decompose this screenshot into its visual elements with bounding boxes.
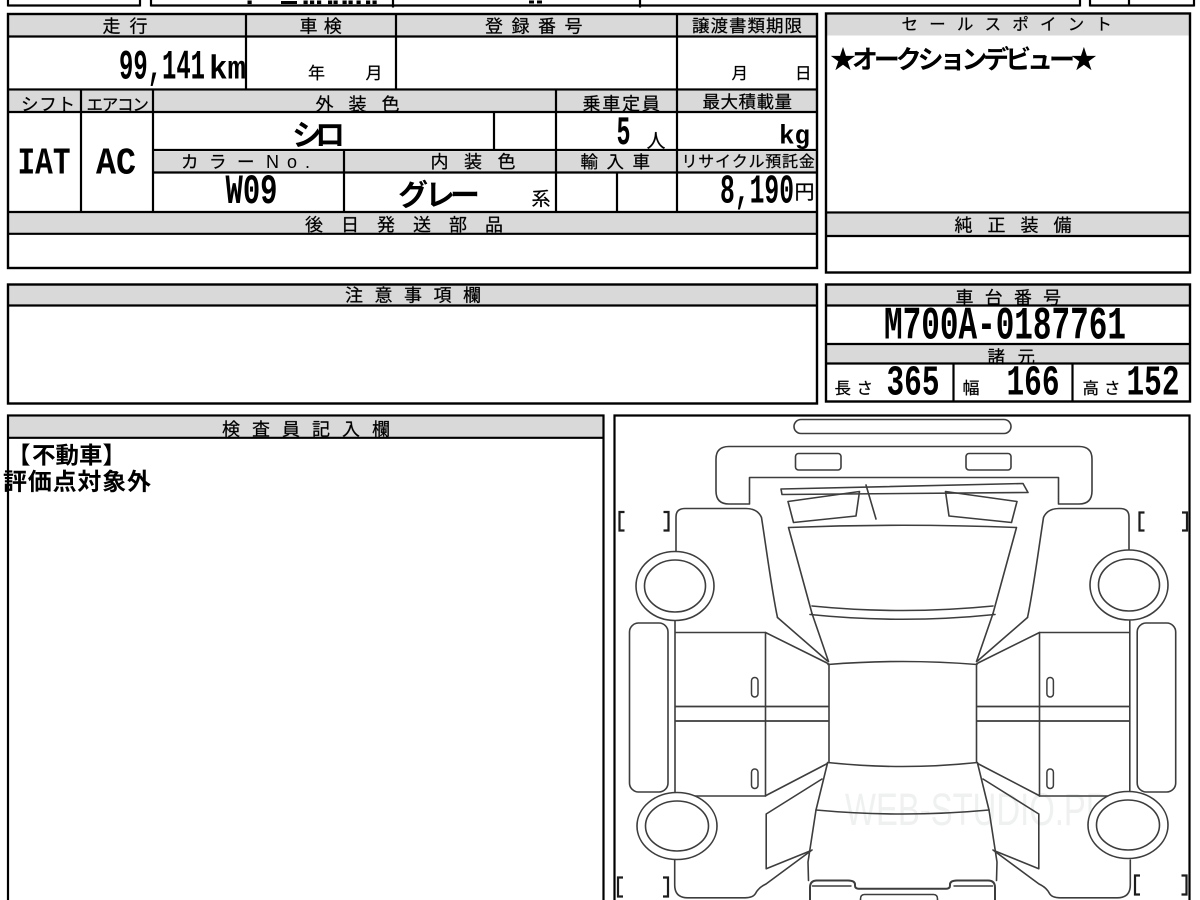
svg-text:AC: AC [96,143,136,186]
svg-text:IAT: IAT [18,143,71,186]
svg-text:99,141: 99,141 [119,44,205,92]
svg-text:166: 166 [1007,359,1060,408]
svg-text:M700A-0187761: M700A-0187761 [884,301,1126,353]
svg-text:8,190: 8,190 [720,170,794,216]
svg-text:W09: W09 [226,168,278,216]
svg-text:152: 152 [1127,359,1180,408]
svg-text:km: km [209,52,246,89]
svg-text:365: 365 [887,359,940,408]
svg-text:5: 5 [617,111,631,157]
svg-text:kg: kg [779,123,810,153]
